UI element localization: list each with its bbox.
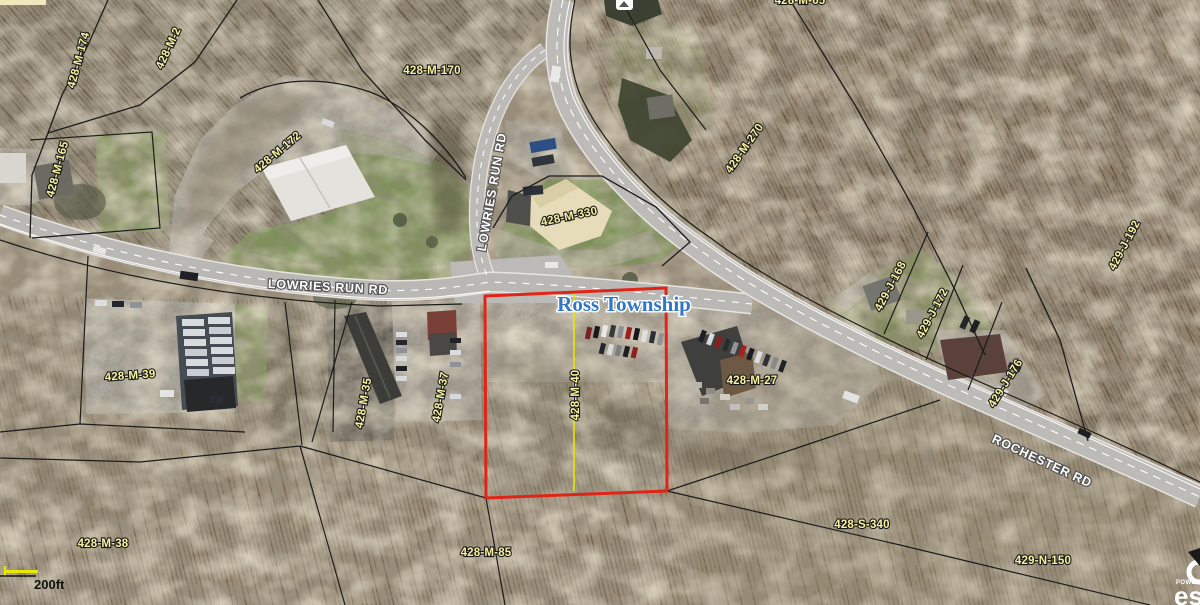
svg-text:428-M-170: 428-M-170 — [403, 65, 460, 77]
svg-text:428-M-27: 428-M-27 — [727, 375, 778, 387]
svg-text:428-M-85: 428-M-85 — [461, 547, 512, 559]
svg-text:Ross Township: Ross Township — [557, 292, 691, 316]
svg-text:428-M-40: 428-M-40 — [570, 370, 582, 421]
svg-text:esri: esri — [1174, 581, 1200, 605]
svg-text:428-M-38: 428-M-38 — [78, 538, 129, 550]
svg-text:200ft: 200ft — [34, 577, 65, 592]
svg-text:428-S-340: 428-S-340 — [834, 519, 890, 531]
svg-text:429-N-150: 429-N-150 — [1015, 555, 1071, 567]
svg-text:428-M-65: 428-M-65 — [775, 0, 826, 7]
